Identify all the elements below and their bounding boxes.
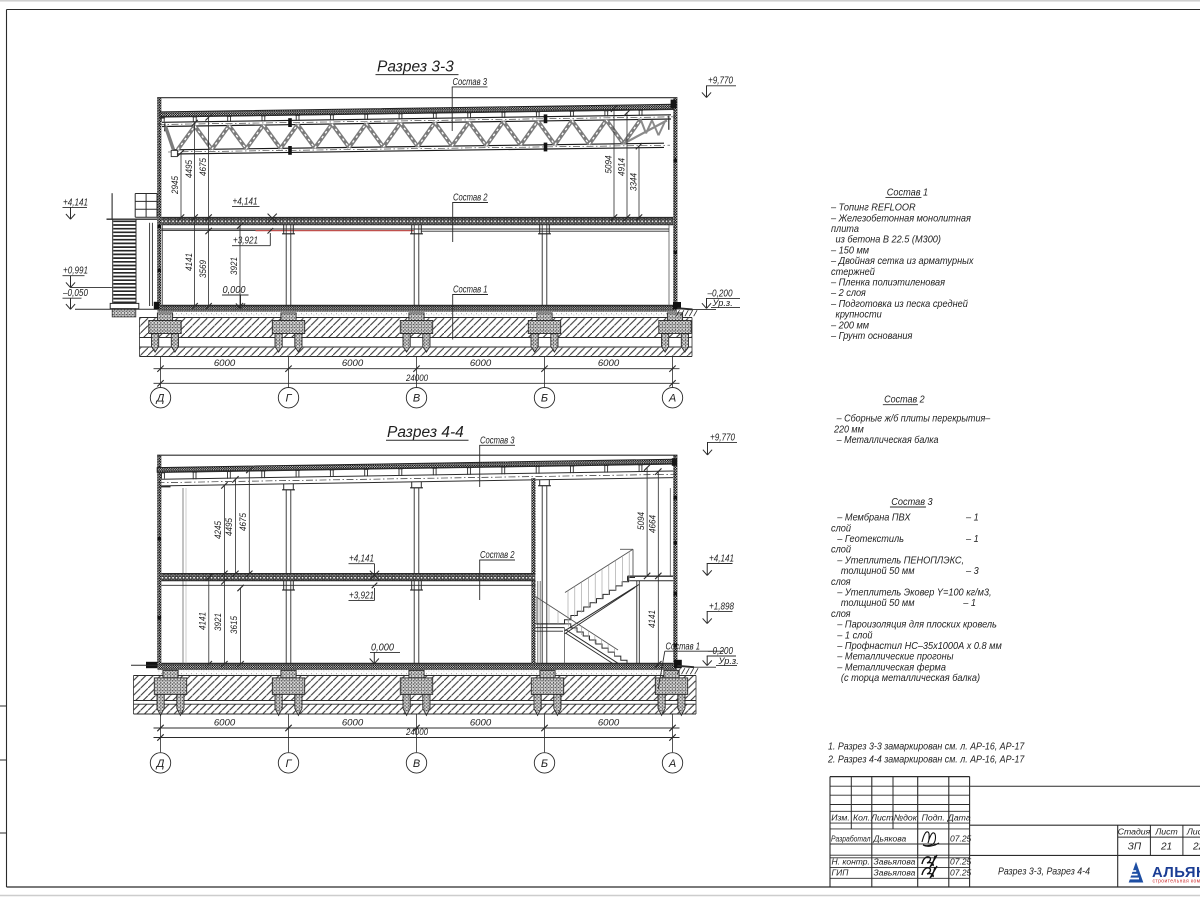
svg-text:Состав 2: Состав 2 xyxy=(480,550,515,561)
svg-text:№док: №док xyxy=(894,812,918,822)
svg-text:+3,921: +3,921 xyxy=(349,590,374,601)
svg-text:Состав 1: Состав 1 xyxy=(666,641,701,652)
svg-text:+9,770: +9,770 xyxy=(710,432,735,443)
svg-text:6000: 6000 xyxy=(470,718,492,729)
svg-text:24000: 24000 xyxy=(405,727,428,738)
svg-text:– Грунт основания: – Грунт основания xyxy=(830,331,912,343)
svg-text:Разрез 4-4: Разрез 4-4 xyxy=(387,424,464,441)
svg-text:Ур.з.: Ур.з. xyxy=(718,656,739,666)
svg-text:Лист: Лист xyxy=(1154,826,1177,836)
svg-text:– Металлическая балка: – Металлическая балка xyxy=(836,435,939,447)
svg-text:толщиной 50 мм: толщиной 50 мм xyxy=(841,566,915,578)
svg-text:2945: 2945 xyxy=(170,175,181,194)
svg-text:строительная компания: строительная компания xyxy=(1153,879,1200,885)
svg-text:Н. контр.: Н. контр. xyxy=(832,857,870,867)
svg-text:Г: Г xyxy=(286,758,293,770)
svg-text:А: А xyxy=(668,758,676,770)
svg-text:В: В xyxy=(413,393,420,405)
svg-text:4495: 4495 xyxy=(224,517,235,536)
svg-text:Состав 2: Состав 2 xyxy=(884,394,925,406)
svg-text:4141: 4141 xyxy=(647,610,658,628)
svg-text:Г: Г xyxy=(286,393,293,405)
svg-text:6000: 6000 xyxy=(214,358,236,369)
svg-text:+4,141: +4,141 xyxy=(63,197,88,208)
svg-text:Изм.: Изм. xyxy=(831,812,850,822)
svg-text:07.25: 07.25 xyxy=(950,834,972,844)
svg-text:Дьякова: Дьякова xyxy=(873,834,907,844)
svg-text:Состав 3: Состав 3 xyxy=(891,496,933,508)
svg-text:Д: Д xyxy=(155,758,165,770)
svg-text:– 1: – 1 xyxy=(965,512,979,524)
svg-text:Состав 2: Состав 2 xyxy=(453,193,488,204)
svg-text:Б: Б xyxy=(541,758,548,770)
svg-text:+4,141: +4,141 xyxy=(233,196,258,207)
svg-text:6000: 6000 xyxy=(342,358,364,369)
svg-text:4914: 4914 xyxy=(617,158,628,176)
svg-text:3921: 3921 xyxy=(213,613,224,631)
svg-text:Состав 3: Состав 3 xyxy=(453,77,488,88)
svg-text:6000: 6000 xyxy=(598,358,620,369)
svg-text:(с торца металлическая балка): (с торца металлическая балка) xyxy=(841,673,980,685)
svg-text:3344: 3344 xyxy=(629,173,640,191)
svg-text:3921: 3921 xyxy=(229,257,240,275)
svg-text:толщиной 50 мм: толщиной 50 мм xyxy=(841,598,915,610)
svg-text:Завьялова: Завьялова xyxy=(874,867,916,877)
svg-text:6000: 6000 xyxy=(470,358,492,369)
svg-text:Д: Д xyxy=(155,393,165,405)
svg-text:24000: 24000 xyxy=(405,373,428,384)
svg-text:3615: 3615 xyxy=(229,615,240,634)
svg-text:+3,921: +3,921 xyxy=(233,236,258,247)
svg-text:Разрез 3-3: Разрез 3-3 xyxy=(377,59,454,76)
svg-text:А: А xyxy=(668,393,676,405)
svg-text:0,000: 0,000 xyxy=(223,285,247,296)
svg-text:–0,050: –0,050 xyxy=(62,288,88,299)
svg-text:В: В xyxy=(413,758,420,770)
svg-text:4141: 4141 xyxy=(197,612,208,630)
svg-text:+4,141: +4,141 xyxy=(349,554,374,565)
svg-text:Завьялова: Завьялова xyxy=(874,857,916,867)
svg-text:ЗП: ЗП xyxy=(1128,842,1142,853)
svg-text:Разрез 3-3, Разрез 4-4: Разрез 3-3, Разрез 4-4 xyxy=(998,867,1090,878)
svg-text:6000: 6000 xyxy=(598,718,620,729)
svg-text:Разработал: Разработал xyxy=(831,834,871,844)
svg-text:Стадия: Стадия xyxy=(1118,826,1151,836)
svg-text:– 1: – 1 xyxy=(962,598,976,610)
svg-text:– 3: – 3 xyxy=(965,566,979,578)
svg-text:21: 21 xyxy=(1160,842,1172,853)
svg-text:5094: 5094 xyxy=(636,512,647,530)
svg-text:ГИП: ГИП xyxy=(832,867,850,877)
svg-text:4675: 4675 xyxy=(238,512,249,531)
svg-text:4245: 4245 xyxy=(213,520,224,539)
svg-text:07.25: 07.25 xyxy=(950,867,972,877)
svg-text:0,000: 0,000 xyxy=(371,642,395,653)
svg-text:+0,991: +0,991 xyxy=(63,266,88,277)
svg-text:Б: Б xyxy=(541,393,548,405)
svg-text:Кол.: Кол. xyxy=(853,812,870,822)
svg-text:Состав 1: Состав 1 xyxy=(453,285,488,296)
svg-text:4664: 4664 xyxy=(647,515,658,533)
svg-text:4495: 4495 xyxy=(184,159,195,178)
svg-text:– 1: – 1 xyxy=(965,534,979,546)
svg-text:07.25: 07.25 xyxy=(950,857,972,867)
svg-text:Дата: Дата xyxy=(947,812,971,822)
svg-text:4141: 4141 xyxy=(184,253,195,271)
svg-text:+1,898: +1,898 xyxy=(709,601,734,612)
svg-text:6000: 6000 xyxy=(214,718,236,729)
svg-text:3569: 3569 xyxy=(198,259,209,278)
svg-text:5094: 5094 xyxy=(604,156,615,174)
svg-text:Состав 1: Состав 1 xyxy=(887,187,928,199)
svg-text:22: 22 xyxy=(1192,842,1200,853)
svg-text:+9,770: +9,770 xyxy=(708,76,733,87)
svg-text:1. Разрез 3-3 замаркирован см.: 1. Разрез 3-3 замаркирован см. л. АР-16,… xyxy=(828,741,1025,753)
svg-text:Ур.з.: Ур.з. xyxy=(712,298,733,308)
svg-text:Лист: Лист xyxy=(870,812,893,822)
svg-text:6000: 6000 xyxy=(342,718,364,729)
svg-text:4675: 4675 xyxy=(198,157,209,176)
svg-text:Лист: Лист xyxy=(1186,826,1200,836)
svg-text:2. Разрез 4-4 замаркирован см.: 2. Разрез 4-4 замаркирован см. л. АР-16,… xyxy=(827,754,1025,766)
svg-text:+4,141: +4,141 xyxy=(709,553,734,564)
svg-text:Подп.: Подп. xyxy=(922,812,945,822)
svg-text:Состав 3: Состав 3 xyxy=(480,435,515,446)
